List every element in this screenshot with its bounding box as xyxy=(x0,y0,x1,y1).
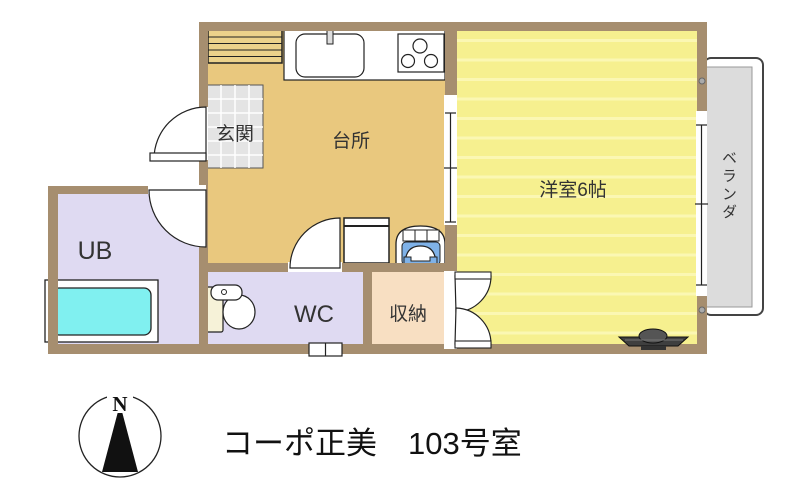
compass: N xyxy=(79,392,161,477)
kitchen-counter xyxy=(284,25,445,80)
washing-machine xyxy=(344,218,389,267)
sliding-door-kitchen xyxy=(444,95,457,225)
veranda-label: ベランダ xyxy=(718,150,739,222)
floor-plan-page: 玄関 台所 洋室6帖 UB WC 収納 N ベランダ コーポ正美 103号室 xyxy=(0,0,792,499)
wall-bottom xyxy=(48,344,707,354)
entrance-label: 玄関 xyxy=(216,123,254,145)
veranda-hinge-dot-bottom xyxy=(699,307,705,313)
stove xyxy=(398,34,444,72)
storage-label: 収納 xyxy=(389,303,427,325)
toilet-label: WC xyxy=(294,301,334,328)
kitchen-label: 台所 xyxy=(332,130,370,152)
washbasin xyxy=(396,226,445,266)
kitchen-cabinet xyxy=(208,30,282,63)
bathtub xyxy=(45,280,158,342)
compass-north-label: N xyxy=(112,392,127,416)
wall-wc-storage-divider xyxy=(363,272,372,354)
plan-title: コーポ正美 103号室 xyxy=(222,418,522,463)
wall-bath-left xyxy=(48,186,58,354)
veranda-hinge-dot-top xyxy=(699,78,705,84)
entrance-door xyxy=(150,107,208,161)
toilet-window xyxy=(309,343,342,356)
unit-bath-label: UB xyxy=(78,237,113,265)
sliding-door-veranda xyxy=(695,111,708,296)
western-room-label: 洋室6帖 xyxy=(539,179,607,201)
wall-right-upper xyxy=(697,22,707,111)
